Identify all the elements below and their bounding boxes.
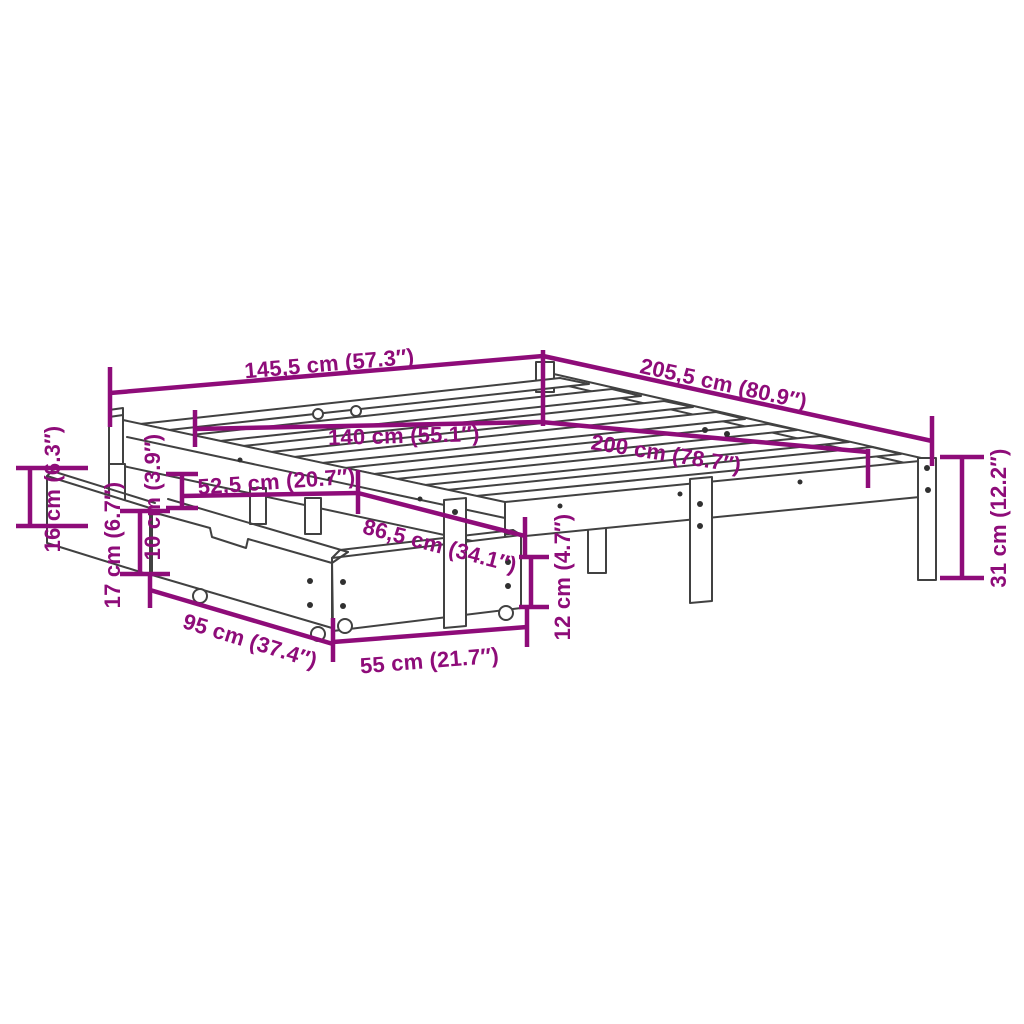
screw-dot: [340, 579, 346, 585]
screw-ring: [351, 406, 361, 416]
screw-ring: [313, 409, 323, 419]
screw-dot: [340, 603, 346, 609]
screw-dot: [418, 497, 423, 502]
screw-dot: [452, 509, 458, 515]
dim-mattress-width-label: 140 cm (55.1″): [328, 421, 480, 450]
screw-dot: [697, 523, 703, 529]
screw-dot: [505, 583, 511, 589]
dim-drawer-total-height-label: 17 cm (6.7″): [100, 482, 125, 609]
screw-dot: [924, 465, 930, 471]
screw-dot: [558, 504, 563, 509]
dim-outer-width-label: 145,5 cm (57.3″): [243, 344, 415, 384]
screw-dot: [678, 492, 683, 497]
caster-wheel: [193, 589, 207, 603]
dim-under-bed-clearance-label: 10 cm (3.9″): [140, 434, 165, 561]
caster-wheel: [338, 619, 352, 633]
foot-corner-leg: [918, 458, 936, 580]
dim-drawer-box-height-label: 12 cm (4.7″): [550, 514, 575, 641]
screw-dot: [724, 431, 730, 437]
diagram-canvas: 145,5 cm (57.3″) 205,5 cm (80.9″) 140 cm…: [0, 0, 1024, 1024]
caster-wheel: [499, 606, 513, 620]
screw-dot: [925, 487, 931, 493]
foot-inset-leg: [690, 477, 712, 603]
dim-leg-height-label: 31 cm (12.2″): [986, 448, 1011, 587]
screw-dot: [307, 578, 313, 584]
dim-leg-height: 31 cm (12.2″): [940, 448, 1011, 587]
bed-dimension-diagram: 145,5 cm (57.3″) 205,5 cm (80.9″) 140 cm…: [0, 0, 1024, 1024]
dim-drawer-width-label: 55 cm (21.7″): [359, 643, 500, 679]
screw-dot: [307, 602, 313, 608]
dim-outer-width: 145,5 cm (57.3″): [110, 344, 543, 427]
screw-dot: [702, 427, 708, 433]
screw-dot: [238, 458, 243, 463]
dim-rail-height-label: 16 cm (6.3″): [40, 426, 65, 553]
rail-support-block: [305, 498, 321, 534]
screw-dot: [798, 480, 803, 485]
screw-dot: [697, 501, 703, 507]
